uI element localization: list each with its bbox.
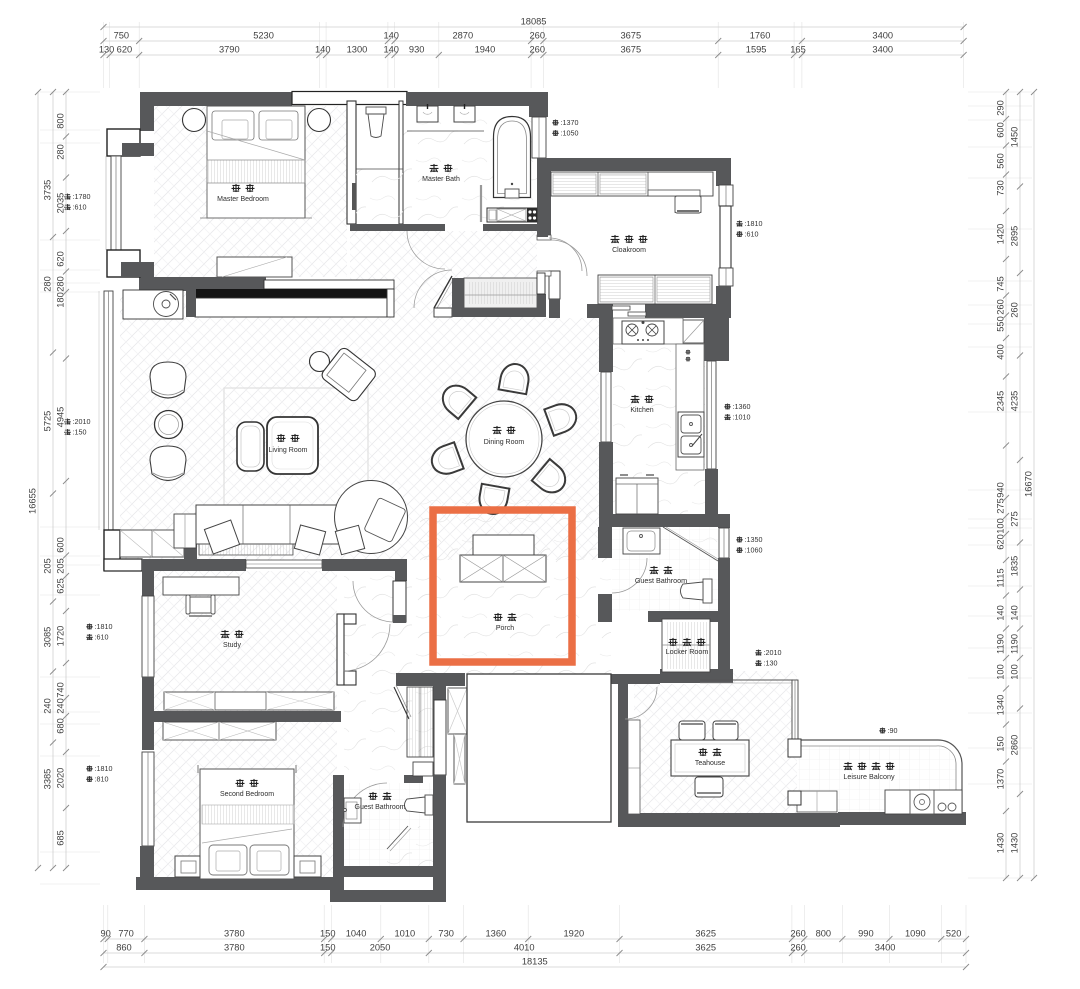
svg-text:260: 260: [1010, 302, 1020, 318]
svg-text:1370: 1370: [996, 769, 1006, 790]
svg-text:1835: 1835: [1010, 556, 1020, 577]
svg-text:3735: 3735: [43, 180, 53, 201]
svg-text::1010: :1010: [733, 413, 751, 422]
svg-text:3675: 3675: [620, 45, 641, 55]
svg-text:520: 520: [946, 929, 962, 939]
svg-text:260: 260: [529, 31, 545, 41]
svg-text:1450: 1450: [1010, 127, 1020, 148]
svg-text:260: 260: [996, 299, 1006, 315]
svg-text:800: 800: [56, 113, 66, 129]
svg-text:1010: 1010: [394, 929, 415, 939]
svg-text:280: 280: [43, 276, 53, 292]
svg-text:600: 600: [996, 122, 1006, 138]
svg-text:100: 100: [996, 664, 1006, 680]
svg-text:3400: 3400: [872, 45, 893, 55]
svg-text:685: 685: [56, 830, 66, 846]
svg-text:3400: 3400: [875, 943, 896, 953]
svg-text:600: 600: [56, 537, 66, 553]
svg-text:620: 620: [117, 45, 133, 55]
svg-text::1810: :1810: [745, 219, 763, 228]
svg-text:2020: 2020: [56, 768, 66, 789]
svg-text:Living Room: Living Room: [269, 447, 308, 454]
svg-text:930: 930: [409, 45, 425, 55]
svg-text:5230: 5230: [253, 31, 274, 41]
svg-text:750: 750: [114, 31, 130, 41]
svg-text:745: 745: [996, 276, 1006, 292]
svg-text:Leisure Balcony: Leisure Balcony: [843, 772, 895, 781]
svg-text:1940: 1940: [475, 45, 496, 55]
svg-text:205: 205: [43, 558, 53, 574]
svg-text:280: 280: [56, 144, 66, 160]
svg-text:2050: 2050: [370, 943, 391, 953]
svg-text::1350: :1350: [745, 535, 763, 544]
svg-text::2010: :2010: [73, 417, 91, 426]
svg-text:260: 260: [529, 45, 545, 55]
svg-text:3780: 3780: [224, 929, 245, 939]
svg-text::810: :810: [95, 775, 109, 784]
svg-text:990: 990: [858, 929, 874, 939]
svg-text:290: 290: [996, 100, 1006, 116]
svg-text:Porch: Porch: [496, 625, 514, 632]
svg-text:1720: 1720: [56, 626, 66, 647]
svg-text:1190: 1190: [1010, 634, 1020, 654]
svg-text:2860: 2860: [1010, 735, 1020, 756]
svg-text:Master Bath: Master Bath: [422, 176, 460, 183]
svg-text:Second Bedroom: Second Bedroom: [220, 791, 274, 798]
svg-text:3675: 3675: [620, 31, 641, 41]
svg-text:Study: Study: [223, 642, 241, 649]
svg-text:400: 400: [996, 344, 1006, 360]
svg-text:550: 550: [996, 316, 1006, 332]
svg-text:16655: 16655: [28, 488, 38, 514]
svg-text:1595: 1595: [746, 45, 767, 55]
svg-text:940: 940: [996, 482, 1006, 498]
svg-text::1370: :1370: [561, 118, 579, 127]
svg-text:275: 275: [1010, 511, 1020, 527]
svg-text:Locker Room: Locker Room: [666, 647, 709, 656]
svg-text:1190: 1190: [996, 634, 1006, 654]
svg-text:3385: 3385: [43, 769, 53, 790]
svg-text:3625: 3625: [695, 943, 716, 953]
svg-text::130: :130: [764, 659, 778, 668]
svg-text:90: 90: [100, 929, 110, 939]
svg-text:740: 740: [56, 682, 66, 698]
svg-text:16670: 16670: [1024, 471, 1034, 497]
svg-text:770: 770: [118, 929, 134, 939]
svg-text:3780: 3780: [224, 943, 245, 953]
svg-text:680: 680: [56, 718, 66, 734]
svg-text:1090: 1090: [905, 929, 926, 939]
svg-text:150: 150: [996, 736, 1006, 752]
svg-text:2870: 2870: [452, 31, 473, 41]
svg-text::2010: :2010: [764, 648, 782, 657]
svg-text:3625: 3625: [695, 929, 716, 939]
svg-text:800: 800: [816, 929, 832, 939]
svg-text:140: 140: [1010, 605, 1020, 621]
svg-text:1340: 1340: [996, 695, 1006, 716]
svg-text:150: 150: [320, 929, 336, 939]
svg-text::1810: :1810: [95, 622, 113, 631]
svg-text::1050: :1050: [561, 129, 579, 138]
svg-text:560: 560: [996, 153, 1006, 169]
svg-text::610: :610: [73, 203, 87, 212]
svg-text:260: 260: [790, 929, 806, 939]
svg-text::610: :610: [745, 230, 759, 239]
svg-text:2895: 2895: [1010, 226, 1020, 247]
svg-text:140: 140: [996, 605, 1006, 621]
svg-text:5725: 5725: [43, 411, 53, 432]
svg-text:140: 140: [383, 45, 399, 55]
svg-text:18085: 18085: [521, 17, 547, 27]
svg-text:1040: 1040: [346, 929, 367, 939]
svg-text:205: 205: [56, 558, 66, 574]
svg-text:730: 730: [438, 929, 454, 939]
svg-text::1360: :1360: [733, 402, 751, 411]
svg-text:730: 730: [996, 180, 1006, 196]
svg-text:Dining Room: Dining Room: [484, 439, 525, 446]
svg-text:100: 100: [996, 518, 1006, 534]
svg-text:140: 140: [383, 31, 399, 41]
svg-text:150: 150: [320, 943, 336, 953]
svg-text:4945: 4945: [56, 407, 66, 428]
svg-text::1810: :1810: [95, 764, 113, 773]
svg-text:Guest Bathroom: Guest Bathroom: [635, 576, 687, 585]
svg-text:4010: 4010: [514, 943, 535, 953]
svg-text:1360: 1360: [486, 929, 507, 939]
svg-text::90: :90: [888, 726, 898, 735]
svg-text:1430: 1430: [1010, 833, 1020, 854]
svg-text:1760: 1760: [750, 31, 771, 41]
svg-text:2035: 2035: [56, 193, 66, 214]
svg-text:625: 625: [56, 578, 66, 594]
svg-text::610: :610: [95, 633, 109, 642]
svg-text:18135: 18135: [522, 957, 548, 967]
svg-text:140: 140: [315, 45, 331, 55]
svg-text::1060: :1060: [745, 546, 763, 555]
svg-text::150: :150: [73, 428, 87, 437]
svg-text:1420: 1420: [996, 224, 1006, 245]
svg-text:1300: 1300: [347, 45, 368, 55]
svg-text:1920: 1920: [564, 929, 585, 939]
svg-text:Cloakroom: Cloakroom: [612, 247, 646, 254]
svg-text:3400: 3400: [872, 31, 893, 41]
svg-text:240: 240: [43, 698, 53, 714]
svg-text:100: 100: [1010, 664, 1020, 680]
svg-text:860: 860: [116, 943, 132, 953]
svg-text:260: 260: [790, 943, 806, 953]
svg-text:Master Bedroom: Master Bedroom: [217, 196, 269, 203]
svg-text:4235: 4235: [1010, 391, 1020, 412]
svg-text:Teahouse: Teahouse: [695, 760, 725, 767]
svg-text:Guest Bathroom: Guest Bathroom: [355, 804, 406, 811]
svg-text:280: 280: [56, 276, 66, 292]
svg-text:3790: 3790: [219, 45, 240, 55]
svg-text::1780: :1780: [73, 192, 91, 201]
svg-text:2345: 2345: [996, 391, 1006, 412]
svg-text:Kitchen: Kitchen: [630, 407, 653, 414]
svg-text:3085: 3085: [43, 627, 53, 648]
svg-text:1115: 1115: [996, 568, 1006, 587]
svg-text:130: 130: [99, 45, 115, 55]
svg-text:620: 620: [56, 251, 66, 267]
svg-text:165: 165: [790, 45, 806, 55]
svg-text:1430: 1430: [996, 833, 1006, 854]
